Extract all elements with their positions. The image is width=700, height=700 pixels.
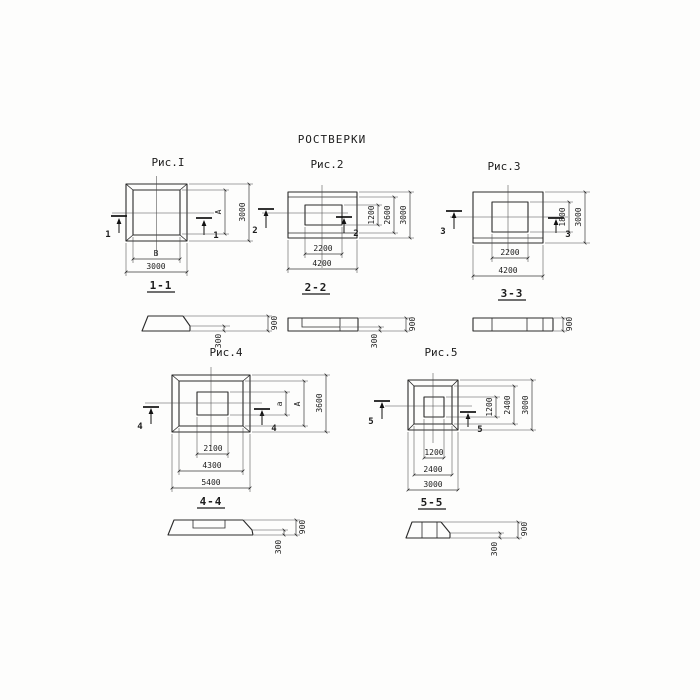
- fig5-axis-lines: [385, 373, 472, 443]
- figure-1-caption: Рис.I: [151, 156, 184, 169]
- fig1-cut-label-left: 1: [105, 230, 110, 240]
- sheet-title: РОСТВЕРКИ: [298, 133, 367, 146]
- section-3-3-dim-height: 900: [565, 317, 574, 332]
- fig2-dim-height-inner: 1200: [367, 205, 376, 224]
- figure-3-caption: Рис.3: [487, 160, 520, 173]
- fig1-cut-label-right: 1: [213, 231, 218, 241]
- fig5-dim-width-mid: 2400: [423, 465, 442, 474]
- fig4-cut-mark-right: 4: [254, 409, 277, 434]
- section-5-5-dim-height: 900: [520, 522, 529, 537]
- section-5-5-outline: [406, 522, 450, 538]
- fig5-plan-recess: [424, 397, 444, 417]
- fig5-cut-mark-left: 5: [368, 401, 390, 427]
- fig5-dim-width-inner: 1200: [424, 448, 443, 457]
- fig2-dim-height-mid: 2600: [383, 205, 392, 224]
- section-2-2-outline: [288, 318, 358, 331]
- fig3-dim-height-inner: 1800: [558, 207, 567, 226]
- fig2-cut-mark-right: 2: [336, 217, 359, 239]
- fig2-edge-strips: [288, 197, 357, 233]
- figure-5-caption: Рис.5: [424, 346, 457, 359]
- figure-2-caption: Рис.2: [310, 158, 343, 171]
- fig1-dim-height-inner: А: [214, 209, 223, 214]
- fig4-dim-height-outer: 3600: [315, 393, 324, 412]
- fig4-plan-recess: [197, 392, 228, 415]
- section-2-2-dim-height: 900: [408, 317, 417, 332]
- fig1-cut-mark-right: 1: [196, 218, 219, 241]
- fig2-dim-height-outer: 3000: [399, 205, 408, 224]
- fig3-dim-height-outer: 3000: [574, 207, 583, 226]
- section-2-2-dim-edge: 300: [370, 334, 379, 349]
- fig1-dim-width-outer: 3000: [146, 262, 165, 271]
- fig4-cut-label-right: 4: [271, 424, 277, 434]
- fig3-cut-label-left: 3: [440, 227, 445, 237]
- fig2-dim-width-outer: 4200: [312, 259, 331, 268]
- section-3-3-label: 3-3: [501, 287, 524, 300]
- section-4-4-label: 4-4: [200, 495, 223, 508]
- fig1-cut-mark-left: 1: [105, 216, 127, 240]
- section-5-5-joints: [422, 522, 437, 538]
- section-2-2-label: 2-2: [305, 281, 328, 294]
- fig2-cut-label-right: 2: [353, 229, 358, 239]
- fig3-cut-label-right: 3: [565, 230, 570, 240]
- fig2-cut-label-left: 2: [252, 226, 257, 236]
- fig1-dim-height-outer: 3000: [238, 202, 247, 221]
- figure-4-caption: Рис.4: [209, 346, 242, 359]
- section-3-3-joints: [492, 318, 543, 331]
- fig4-dim-width-outer: 5400: [201, 478, 220, 487]
- fig2-dim-width-inner: 2200: [313, 244, 332, 253]
- fig5-dim-height-outer: 3000: [521, 395, 530, 414]
- fig4-dim-width-mid: 4300: [202, 461, 221, 470]
- section-4-4-view: 300 900: [168, 520, 307, 555]
- fig5-cut-mark-right: 5: [460, 412, 483, 435]
- section-2-2-view: 300 900: [288, 317, 417, 349]
- section-4-4-outline: [168, 520, 253, 535]
- fig4-axis-lines: [145, 367, 262, 447]
- section-3-3-view: 900: [473, 317, 574, 332]
- fig3-dim-width-inner: 2200: [500, 248, 519, 257]
- figure-4: Рис.4 4 4 а А 3600 2100 4300: [137, 346, 330, 554]
- figure-3: Рис.3 3 3 1800 3000 2200 4200 3-3: [440, 160, 590, 331]
- fig3-cut-mark-left: 3: [440, 211, 462, 237]
- section-1-1-label: 1-1: [150, 279, 173, 292]
- section-3-3-outline: [473, 318, 553, 331]
- fig2-plan-opening: [305, 205, 342, 225]
- section-1-1-dim-height: 900: [270, 316, 279, 331]
- fig2-plan-outline: [288, 192, 357, 238]
- drawing-canvas: РОСТВЕРКИ Рис.I 1 1 А 3000 В 3000: [0, 0, 700, 700]
- fig4-cut-mark-left: 4: [137, 407, 159, 432]
- drawing-sheet: РОСТВЕРКИ Рис.I 1 1 А 3000 В 3000: [0, 0, 700, 700]
- fig1-dimensions: А 3000 В 3000: [126, 184, 253, 276]
- fig4-dim-width-inner: 2100: [203, 444, 222, 453]
- fig4-dim-height-inner: а: [275, 401, 284, 406]
- fig5-dim-height-mid: 2400: [503, 395, 512, 414]
- fig4-dim-height-mid: А: [293, 401, 302, 406]
- figure-1: Рис.I 1 1 А 3000 В 3000 1-1: [105, 156, 279, 348]
- section-5-5-label: 5-5: [421, 496, 444, 509]
- section-5-5-view: 300 900: [406, 522, 529, 557]
- section-4-4-dim-height: 900: [298, 520, 307, 535]
- fig3-dim-width-outer: 4200: [498, 266, 517, 275]
- fig1-dim-width-inner: В: [154, 249, 159, 258]
- section-1-1-view: 300 900: [142, 316, 279, 349]
- section-5-5-dim-edge: 300: [490, 542, 499, 557]
- fig5-cut-label-left: 5: [368, 417, 373, 427]
- fig1-axis-lines: [112, 176, 214, 256]
- section-4-4-dim-edge: 300: [274, 540, 283, 555]
- fig2-dimensions: 1200 2600 3000 2200 4200: [288, 192, 414, 273]
- section-2-2-recess: [302, 318, 340, 331]
- fig3-dimensions: 1800 3000 2200 4200: [473, 192, 590, 280]
- fig5-dim-width-outer: 3000: [423, 480, 442, 489]
- figure-5: Рис.5 5 5 1200 2400 3000 1200 2: [368, 346, 536, 556]
- fig4-cut-label-left: 4: [137, 422, 143, 432]
- fig5-dim-height-inner: 1200: [485, 397, 494, 416]
- fig4-dimensions: а А 3600 2100 4300 5400: [172, 375, 330, 492]
- section-1-1-outline: [142, 316, 190, 331]
- section-4-4-recess: [193, 520, 225, 528]
